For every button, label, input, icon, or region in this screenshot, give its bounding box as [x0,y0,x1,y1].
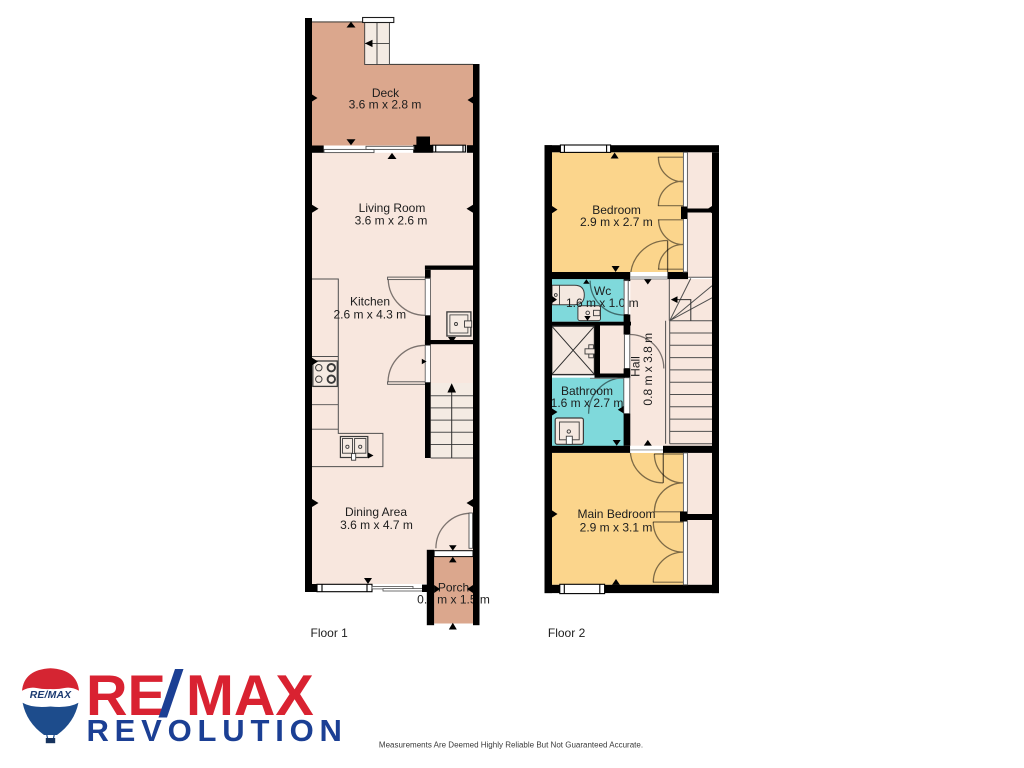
svg-text:3.6 m x 2.6 m: 3.6 m x 2.6 m [355,214,428,228]
svg-text:Floor 2: Floor 2 [548,626,586,640]
svg-text:Floor 1: Floor 1 [311,626,349,640]
svg-text:1.6 m x 2.7 m: 1.6 m x 2.7 m [551,396,624,410]
svg-text:2.9 m x 3.1 m: 2.9 m x 3.1 m [580,521,653,535]
svg-text:2.9 m x 2.7 m: 2.9 m x 2.7 m [580,215,653,229]
svg-text:Main Bedroom: Main Bedroom [577,507,655,521]
svg-text:3.6 m x 2.8 m: 3.6 m x 2.8 m [349,98,422,112]
svg-text:REVOLUTION: REVOLUTION [87,713,348,748]
svg-text:Measurements Are Deemed Highly: Measurements Are Deemed Highly Reliable … [379,741,643,750]
svg-text:RE/MAX: RE/MAX [30,690,72,701]
svg-text:0.8 m x 3.8 m: 0.8 m x 3.8 m [641,333,655,406]
svg-text:Kitchen: Kitchen [350,295,390,309]
svg-text:2.6 m x 4.3 m: 2.6 m x 4.3 m [333,308,406,322]
svg-text:3.6 m x 4.7 m: 3.6 m x 4.7 m [340,518,413,532]
